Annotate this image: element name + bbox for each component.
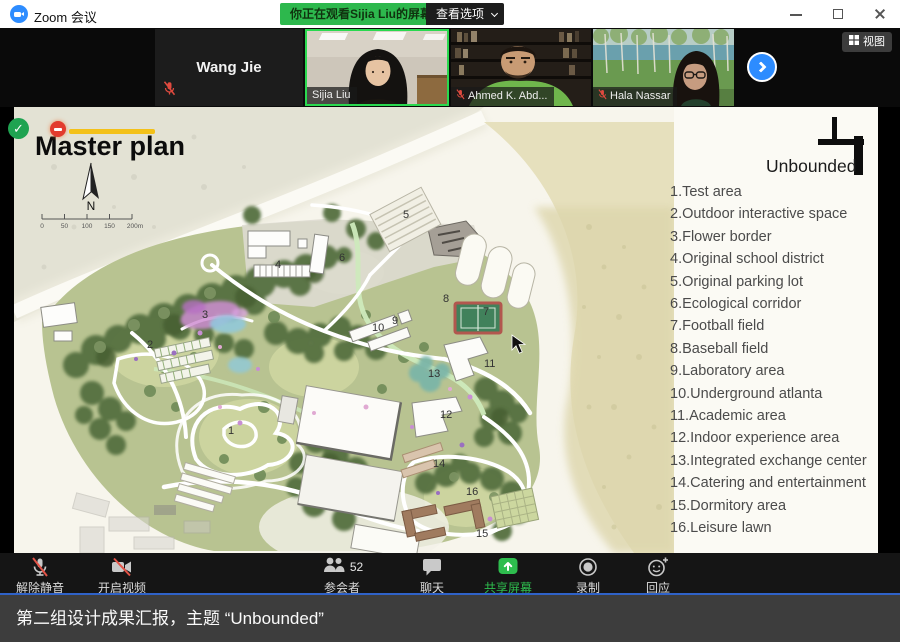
legend-item: 1.Test area bbox=[670, 181, 882, 203]
meeting-toolbar: 解除静音 开启视频 52 参会者 聊天 bbox=[0, 553, 900, 595]
svg-text:150: 150 bbox=[104, 223, 115, 230]
shared-screen-stage: ✓ Master plan Unbounded 1.Test area2.Out… bbox=[0, 107, 900, 553]
legend-item: 16.Leisure lawn bbox=[670, 517, 882, 539]
map-number-label: 1 bbox=[228, 425, 234, 437]
minimize-button[interactable] bbox=[788, 6, 804, 22]
legend-item: 9.Laboratory area bbox=[670, 360, 882, 382]
map-number-label: 8 bbox=[443, 293, 449, 305]
map-number-label: 2 bbox=[147, 339, 153, 351]
chat-button[interactable]: 聊天 bbox=[394, 556, 470, 596]
video-tile-wang-jie[interactable]: Wang Jie bbox=[155, 29, 303, 106]
legend-item: 13.Integrated exchange center bbox=[670, 450, 882, 472]
security-check-icon: ✓ bbox=[8, 118, 29, 139]
record-icon bbox=[577, 556, 599, 578]
caption-text: 第二组设计成果汇报，主题 “Unbounded” bbox=[16, 595, 324, 642]
app-title: Zoom 会议 bbox=[34, 7, 97, 26]
mic-muted-icon bbox=[163, 81, 176, 101]
share-screen-icon bbox=[497, 556, 519, 578]
map-number-label: 12 bbox=[440, 409, 452, 421]
chevron-down-icon bbox=[491, 9, 498, 16]
reactions-button[interactable]: 回应 bbox=[620, 556, 696, 596]
legend-item: 4.Original school district bbox=[670, 248, 882, 270]
yellow-highlight-annotation bbox=[69, 129, 155, 134]
video-tile-sijia-liu[interactable]: Sijia Liu bbox=[305, 29, 449, 106]
svg-text:200m: 200m bbox=[127, 223, 143, 230]
map-number-label: 16 bbox=[466, 486, 478, 498]
svg-text:N: N bbox=[87, 199, 96, 213]
map-number-label: 14 bbox=[433, 458, 445, 470]
view-options-dropdown[interactable]: 查看选项 bbox=[426, 3, 504, 25]
master-plan-map: N 0 50 100 150 200m 12345678910111213141… bbox=[14, 107, 674, 553]
close-button[interactable] bbox=[872, 6, 888, 22]
view-layout-button[interactable]: 视图 bbox=[842, 32, 892, 52]
map-number-label: 10 bbox=[372, 322, 384, 334]
legend-item: 12.Indoor experience area bbox=[670, 427, 882, 449]
map-number-label: 3 bbox=[202, 309, 208, 321]
mic-muted-icon bbox=[598, 89, 607, 103]
chevron-right-icon bbox=[755, 61, 766, 72]
legend-item: 5.Original parking lot bbox=[670, 271, 882, 293]
football-field bbox=[455, 303, 501, 333]
svg-text:50: 50 bbox=[61, 223, 69, 230]
legend-item: 8.Baseball field bbox=[670, 338, 882, 360]
video-tile-ahmed[interactable]: Ahmed K. Abd... bbox=[451, 29, 591, 106]
camera-muted-icon bbox=[110, 556, 134, 578]
legend-item: 3.Flower border bbox=[670, 226, 882, 248]
watching-screen-badge: 你正在观看Sijia Liu的屏幕 bbox=[280, 3, 442, 25]
maximize-button[interactable] bbox=[830, 6, 846, 22]
participant-name-chip: Ahmed K. Abd... bbox=[451, 87, 554, 106]
video-tile-hala[interactable]: Hala Nassar bbox=[593, 29, 734, 106]
map-number-label: 5 bbox=[403, 209, 409, 221]
participants-button[interactable]: 52 参会者 bbox=[304, 556, 380, 596]
mic-muted-icon bbox=[29, 556, 51, 578]
svg-text:100: 100 bbox=[82, 223, 93, 230]
legend-item: 10.Underground atlanta bbox=[670, 383, 882, 405]
mic-muted-icon bbox=[456, 89, 465, 103]
chat-bubble-icon bbox=[421, 556, 443, 578]
grid-view-icon bbox=[849, 32, 859, 52]
participant-count: 52 bbox=[350, 560, 363, 574]
zoom-app-icon bbox=[10, 5, 28, 23]
legend-item: 11.Academic area bbox=[670, 405, 882, 427]
share-screen-button[interactable]: 共享屏幕 bbox=[470, 556, 546, 596]
brand-name: Unbounded bbox=[766, 156, 857, 177]
record-button[interactable]: 录制 bbox=[550, 556, 626, 596]
next-participants-arrow-button[interactable] bbox=[747, 52, 777, 82]
legend-item: 15.Dormitory area bbox=[670, 495, 882, 517]
legend-list: 1.Test area2.Outdoor interactive space3.… bbox=[670, 181, 882, 540]
legend-item: 7.Football field bbox=[670, 315, 882, 337]
video-strip: Wang Jie Sijia Liu bbox=[0, 28, 900, 107]
caption-bar: 第二组设计成果汇报，主题 “Unbounded” bbox=[0, 595, 900, 642]
recording-dot-icon bbox=[50, 121, 66, 137]
map-number-label: 6 bbox=[339, 252, 345, 264]
participant-name-chip: Sijia Liu bbox=[307, 87, 357, 104]
map-number-label: 13 bbox=[428, 368, 440, 380]
start-video-button[interactable]: 开启视频 bbox=[84, 556, 160, 596]
smiley-plus-icon bbox=[646, 556, 670, 578]
map-number-label: 9 bbox=[392, 315, 398, 327]
zoom-meeting-window: Zoom 会议 你正在观看Sijia Liu的屏幕 查看选项 Wang Jie bbox=[0, 0, 900, 642]
participant-name: Wang Jie bbox=[155, 29, 303, 106]
legend-item: 6.Ecological corridor bbox=[670, 293, 882, 315]
legend-item: 14.Catering and entertainment bbox=[670, 472, 882, 494]
shared-slide: ✓ Master plan Unbounded 1.Test area2.Out… bbox=[14, 107, 878, 553]
unmute-button[interactable]: 解除静音 bbox=[2, 556, 78, 596]
map-number-label: 11 bbox=[484, 358, 495, 370]
svg-text:0: 0 bbox=[40, 223, 44, 230]
participants-icon bbox=[321, 555, 347, 580]
map-number-label: 7 bbox=[483, 306, 489, 318]
legend-item: 2.Outdoor interactive space bbox=[670, 203, 882, 225]
map-number-label: 4 bbox=[275, 259, 281, 271]
map-number-label: 15 bbox=[476, 528, 488, 540]
title-bar: Zoom 会议 你正在观看Sijia Liu的屏幕 查看选项 bbox=[0, 0, 900, 28]
participant-name-chip: Hala Nassar bbox=[593, 87, 677, 106]
